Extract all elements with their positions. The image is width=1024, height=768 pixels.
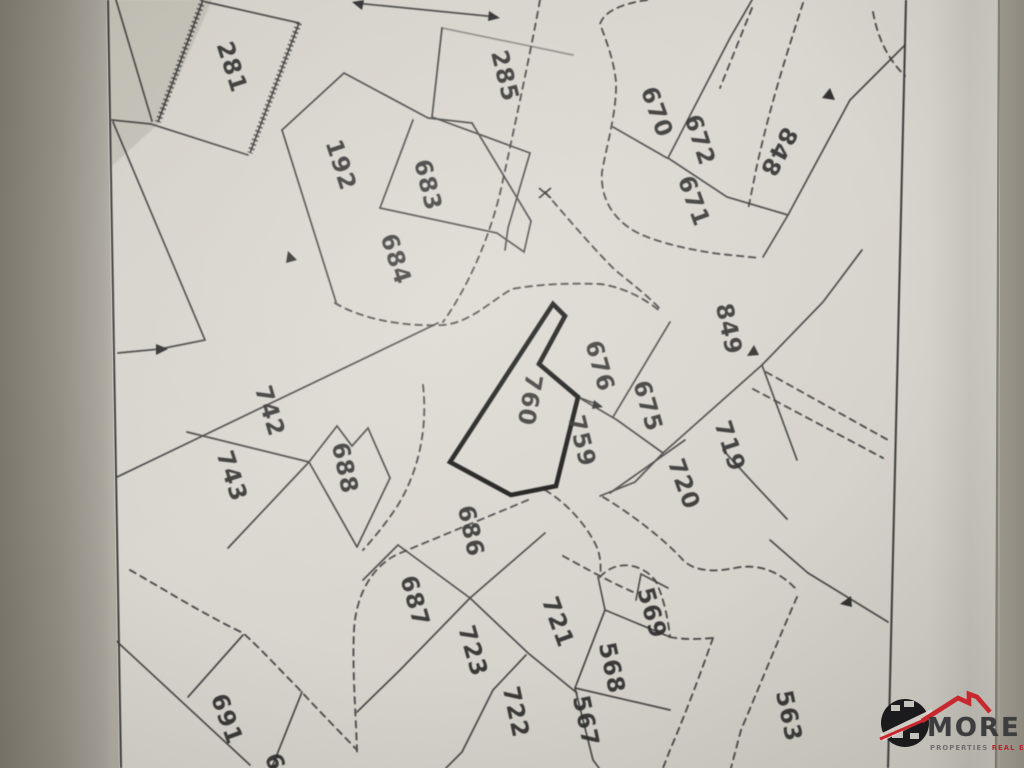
- logo-tagline-red: REAL ESTATES: [992, 744, 1024, 752]
- logo-tagline-gray: PROPERTIES: [930, 744, 988, 752]
- more-properties-watermark: MORE PROPERTIES REAL ESTATES: [870, 682, 1024, 768]
- paper-sheet: [106, 0, 1001, 768]
- logo-tagline: PROPERTIES REAL ESTATES: [930, 744, 1024, 752]
- photographed-cadastral-map: 2812851926836846706726718488496766757607…: [0, 0, 1024, 768]
- cadastral-map-canvas: 2812851926836846706726718488496766757607…: [0, 0, 1024, 768]
- logo-brand-text: MORE: [927, 715, 1021, 741]
